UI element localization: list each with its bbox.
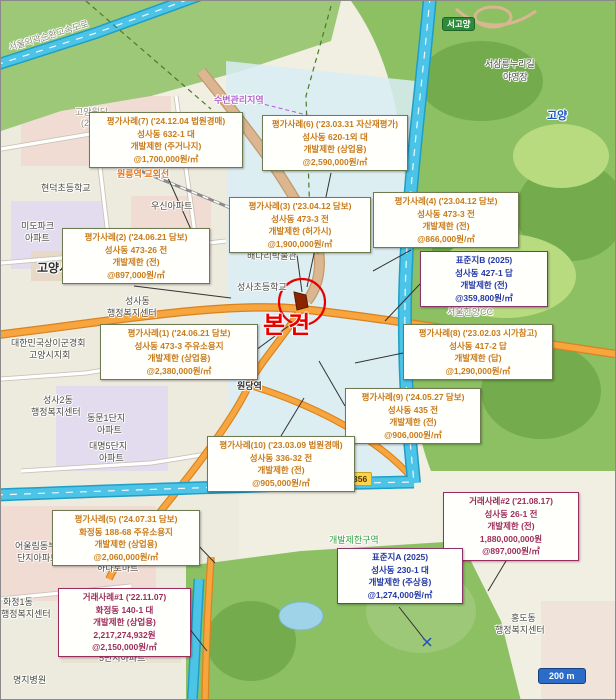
map-label: 서삼릉누리길 — [485, 57, 535, 70]
callout-line: 1,880,000,000원 — [446, 533, 576, 546]
map-label: 원당역 — [237, 379, 262, 392]
callout-line: 성사동 230-1 대 — [340, 564, 460, 577]
callout-line: 화정동 188-68 주유소용지 — [55, 526, 197, 539]
map-label: 행정복지센터 — [1, 607, 51, 620]
callout-eval-5: 평가사례(5) ('24.07.31 담보)화정동 188-68 주유소용지개발… — [52, 510, 200, 566]
callout-line: 성사동 473-26 전 — [65, 244, 207, 257]
callout-line: 성사동 620-1외 대 — [265, 131, 405, 144]
callout-line: @2,380,000원/㎡ — [103, 365, 255, 378]
callout-line: 표준지B (2025) — [423, 254, 545, 267]
callout-line: 화정동 140-1 대 — [61, 604, 188, 617]
callout-line: 평가사례(8) ('23.02.03 시가참고) — [406, 327, 550, 340]
callout-line: 개발제한 (전) — [348, 416, 478, 429]
callout-line: @359,800원/㎡ — [423, 292, 545, 305]
map-label: 고양시지회 — [29, 348, 70, 361]
callout-line: 평가사례(10) ('23.03.09 법원경매) — [210, 439, 352, 452]
map-label: 개발제한구역 — [329, 533, 379, 546]
callout-line: @897,000원/㎡ — [65, 269, 207, 282]
callout-line: 개발제한 (전) — [446, 520, 576, 533]
map-label: 행정복지센터 — [495, 623, 545, 636]
callout-line: 성사동 473-3 전 — [376, 208, 516, 221]
callout-line: 개발제한 (답) — [406, 352, 550, 365]
callout-line: 평가사례(4) ('23.04.12 담보) — [376, 195, 516, 208]
map-label: 아파트 — [25, 231, 50, 244]
map-label: 행정복지센터 — [31, 405, 81, 418]
map-label: 야영장 — [503, 70, 528, 83]
callout-line: 성사동 427-1 답 — [423, 267, 545, 280]
callout-standard-b: 표준지B (2025)성사동 427-1 답개발제한 (전)@359,800원/… — [420, 251, 548, 307]
callout-eval-6: 평가사례(6) ('23.03.31 자산재평가)성사동 620-1외 대개발제… — [262, 115, 408, 171]
map-label: 수변관리지역 — [214, 93, 264, 106]
callout-transaction-1: 거래사례#1 ('22.11.07)화정동 140-1 대개발제한 (상업용)2… — [58, 588, 191, 657]
map-label: 아파트 — [99, 451, 124, 464]
map-label: 행정복지센터 — [107, 306, 157, 319]
callout-eval-8: 평가사례(8) ('23.02.03 시가참고)성사동 417-2 답개발제한 … — [403, 324, 553, 380]
callout-line: @1,900,000원/㎡ — [232, 238, 368, 251]
map-label: 우신아파트 — [151, 199, 192, 212]
callout-line: 성사동 473-3 주유소용지 — [103, 340, 255, 353]
callout-line: @1,274,000원/㎡ — [340, 589, 460, 602]
callout-eval-2: 평가사례(2) ('24.06.21 담보)성사동 473-26 전개발제한 (… — [62, 228, 210, 284]
callout-line: @897,000원/㎡ — [446, 545, 576, 558]
callout-line: 개발제한 (전) — [423, 279, 545, 292]
map-label: 명지병원 — [13, 673, 46, 686]
callout-line: @1,700,000원/㎡ — [92, 153, 240, 166]
scale-bar: 200 m — [538, 668, 586, 684]
map-label: 고양 — [547, 107, 567, 123]
callout-eval-1: 평가사례(1) ('24.06.21 담보)성사동 473-3 주유소용지개발제… — [100, 324, 258, 380]
callout-line: 개발제한 (상업용) — [103, 352, 255, 365]
callout-line: 개발제한 (전) — [376, 220, 516, 233]
map-label: 아파트 — [97, 423, 122, 436]
callout-line: 개발제한 (허가시) — [232, 225, 368, 238]
callout-line: @1,290,000원/㎡ — [406, 365, 550, 378]
callout-eval-3: 평가사례(3) ('23.04.12 담보)성사동 473-3 전개발제한 (허… — [229, 197, 371, 253]
callout-line: 개발제한 (상업용) — [61, 616, 188, 629]
callout-line: 개발제한 (전) — [210, 464, 352, 477]
badge-seogoyang: 서고양 — [442, 17, 475, 31]
callout-eval-10: 평가사례(10) ('23.03.09 법원경매)성사동 336-32 전개발제… — [207, 436, 355, 492]
callout-line: 성사동 632-1 대 — [92, 128, 240, 141]
callout-line: 거래사례#1 ('22.11.07) — [61, 591, 188, 604]
callout-line: 성사동 435 전 — [348, 404, 478, 417]
callout-line: 성사동 417-2 답 — [406, 340, 550, 353]
callout-line: 성사동 26-1 전 — [446, 508, 576, 521]
callout-line: 평가사례(9) ('24.05.27 담보) — [348, 391, 478, 404]
callout-line: 거래사례#2 ('21.08.17) — [446, 495, 576, 508]
callout-line: 성사동 336-32 전 — [210, 452, 352, 465]
callout-line: 개발제한 (주상용) — [340, 576, 460, 589]
callout-line: @905,000원/㎡ — [210, 477, 352, 490]
map-canvas[interactable]: 본건 200 m 평가사례(7) ('24.12.04 법원경매)성사동 632… — [0, 0, 616, 700]
callout-line: @2,150,000원/㎡ — [61, 641, 188, 654]
callout-eval-9: 평가사례(9) ('24.05.27 담보)성사동 435 전개발제한 (전)@… — [345, 388, 481, 444]
callout-line: 2,217,274,932원 — [61, 629, 188, 642]
callout-line: @906,000원/㎡ — [348, 429, 478, 442]
callout-line: 성사동 473-3 전 — [232, 213, 368, 226]
callout-line: 평가사례(3) ('23.04.12 담보) — [232, 200, 368, 213]
callout-line: 평가사례(1) ('24.06.21 담보) — [103, 327, 255, 340]
callout-line: 개발제한 (상업용) — [55, 538, 197, 551]
map-label: 성사초등학교 — [237, 280, 287, 293]
callout-line: @2,060,000원/㎡ — [55, 551, 197, 564]
callout-line: 개발제한 (전) — [65, 256, 207, 269]
callout-standard-a: 표준지A (2025)성사동 230-1 대개발제한 (주상용)@1,274,0… — [337, 548, 463, 604]
subject-label: 본건 — [263, 305, 313, 340]
callout-line: 개발제한 (주거나지) — [92, 140, 240, 153]
map-label: 원릉역 교외선 — [117, 167, 169, 180]
callout-line: @2,590,000원/㎡ — [265, 156, 405, 169]
callout-eval-4: 평가사례(4) ('23.04.12 담보)성사동 473-3 전개발제한 (전… — [373, 192, 519, 248]
callout-line: 개발제한 (상업용) — [265, 143, 405, 156]
callout-line: @866,000원/㎡ — [376, 233, 516, 246]
callout-line: 평가사례(6) ('23.03.31 자산재평가) — [265, 118, 405, 131]
callout-transaction-2: 거래사례#2 ('21.08.17)성사동 26-1 전개발제한 (전)1,88… — [443, 492, 579, 561]
callout-line: 평가사례(2) ('24.06.21 담보) — [65, 231, 207, 244]
callout-eval-7: 평가사례(7) ('24.12.04 법원경매)성사동 632-1 대개발제한 … — [89, 112, 243, 168]
callout-line: 평가사례(5) ('24.07.31 담보) — [55, 513, 197, 526]
callout-line: 평가사례(7) ('24.12.04 법원경매) — [92, 115, 240, 128]
map-label: 현덕초등학교 — [41, 181, 91, 194]
callout-line: 표준지A (2025) — [340, 551, 460, 564]
